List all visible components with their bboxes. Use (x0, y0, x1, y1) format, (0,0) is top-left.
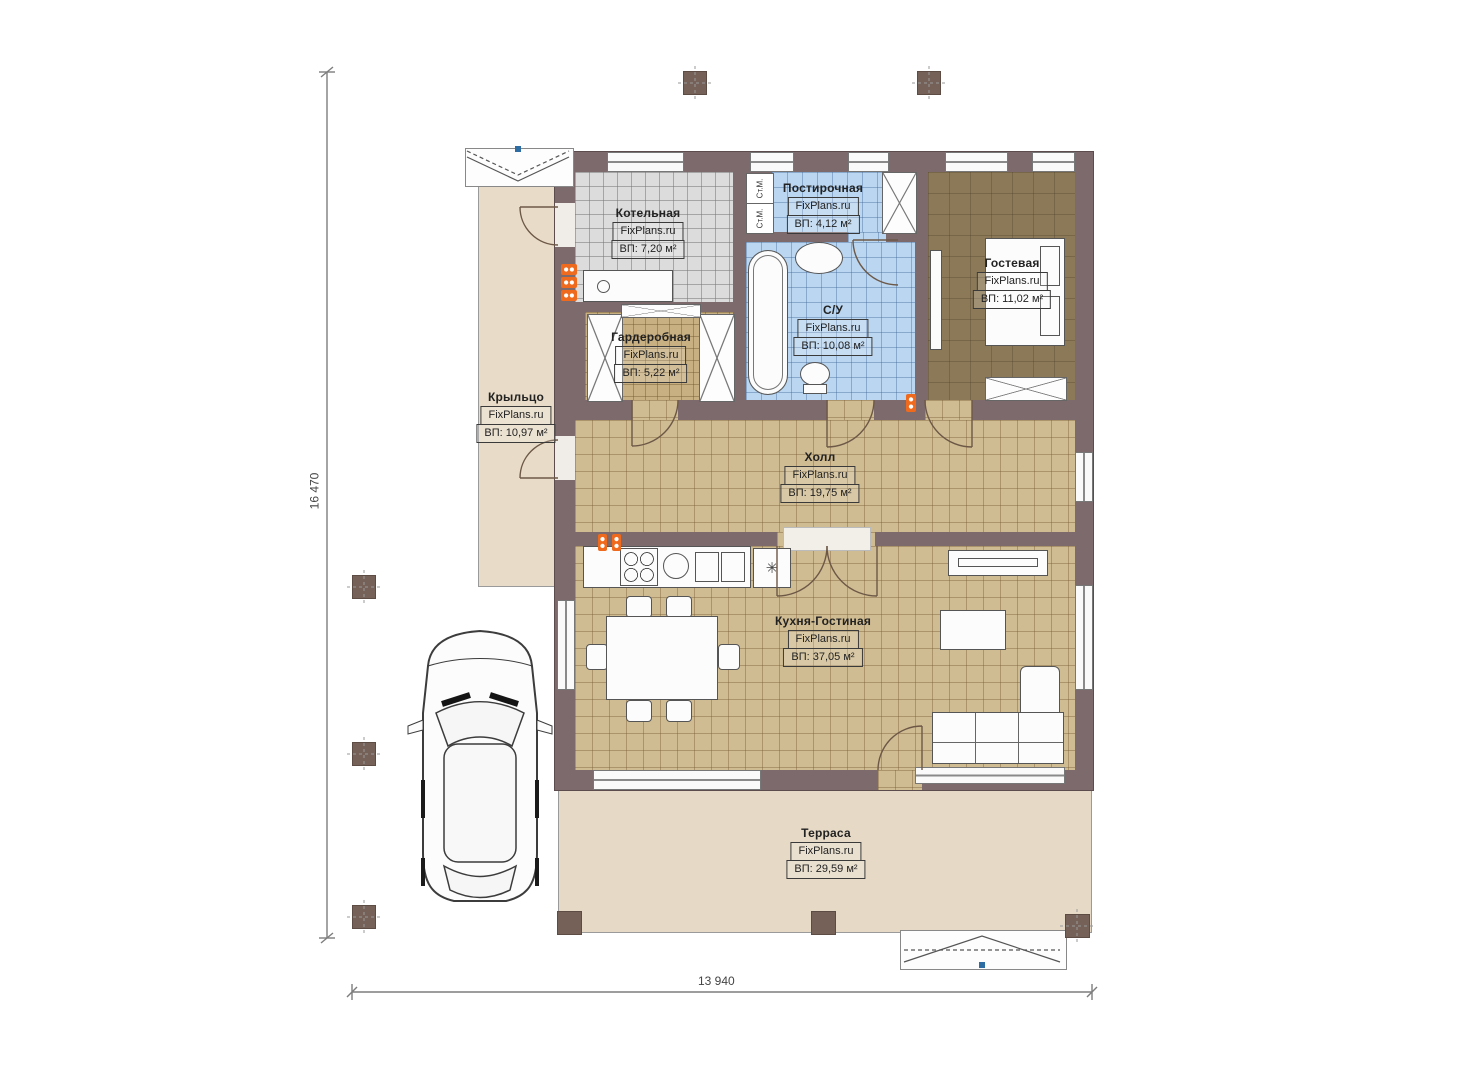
guest-dresser (930, 250, 942, 350)
dining-chair-1 (626, 596, 652, 618)
area-box: ВП: 10,97 м² (476, 424, 555, 443)
pillar-terrace-2 (812, 912, 835, 934)
toilet-bowl (800, 362, 830, 386)
window-top-1 (607, 152, 684, 172)
room-label-boiler: Котельная FixPlans.ru ВП: 7,20 м² (611, 206, 684, 259)
laundry-closet (882, 172, 917, 234)
radiator-boiler-3 (561, 290, 577, 301)
brand-box: FixPlans.ru (797, 319, 868, 338)
area-box: ВП: 10,08 м² (793, 337, 872, 356)
room-label-kitchen-living: Кухня-Гостиная FixPlans.ru ВП: 37,05 м² (775, 614, 871, 667)
pillar-left-2 (353, 743, 375, 765)
radiator-bathroom (906, 394, 916, 412)
fridge-glyph: ✳ (766, 559, 779, 577)
door-gap-bathroom-hall (827, 400, 874, 420)
porch-window-marker (465, 148, 574, 187)
window-top-2 (750, 152, 794, 172)
radiator-kitchen-2 (612, 534, 621, 551)
room-name: Холл (805, 450, 836, 464)
washer-label-2: Ст.М. (755, 209, 764, 229)
threshold-porch-door-2 (555, 436, 575, 480)
washing-machine-2: Ст.М. (746, 203, 774, 234)
dining-chair-6 (718, 644, 740, 670)
sliding-window-living (915, 767, 1065, 784)
pillar-left-1 (353, 576, 375, 598)
room-name: Кухня-Гостиная (775, 614, 871, 628)
dining-chair-2 (666, 596, 692, 618)
window-kitchen-left (557, 600, 575, 690)
brand-box: FixPlans.ru (615, 346, 686, 365)
radiator-boiler-2 (561, 277, 577, 288)
stove (620, 548, 658, 586)
sofa (932, 712, 1064, 764)
bathtub (748, 250, 788, 395)
area-box: ВП: 37,05 м² (783, 648, 862, 667)
room-name: Постирочная (783, 181, 863, 195)
room-label-bathroom: С/У FixPlans.ru ВП: 10,08 м² (793, 303, 872, 356)
door-gap-guest-hall (925, 400, 972, 420)
wardrobe-cabinet-top (621, 304, 701, 318)
room-name: Крыльцо (488, 390, 544, 404)
kitchen-sink-2 (721, 552, 745, 582)
dimension-line-left (319, 67, 335, 943)
kitchen-sink-1 (695, 552, 719, 582)
window-top-5 (1032, 152, 1075, 172)
radiator-kitchen-1 (598, 534, 607, 551)
threshold-hall-kitchen (783, 527, 871, 551)
area-box: ВП: 19,75 м² (780, 484, 859, 503)
brand-box: FixPlans.ru (787, 197, 858, 216)
dining-chair-4 (666, 700, 692, 722)
door-gap-wardrobe-hall (632, 400, 678, 420)
tv-panel (958, 558, 1038, 567)
floor-plan-canvas: Ст.М. Ст.М. ✳ (0, 0, 1474, 1080)
room-name: Терраса (801, 826, 851, 840)
washer-label-1: Ст.М. (755, 179, 764, 199)
window-kitchen-bottom (593, 770, 761, 790)
dining-table (606, 616, 718, 700)
window-hall-right (1075, 452, 1093, 502)
room-label-hall: Холл FixPlans.ru ВП: 19,75 м² (780, 450, 859, 503)
guest-closet (985, 377, 1067, 401)
brand-box: FixPlans.ru (480, 406, 551, 425)
kitchen-round-basin (663, 553, 689, 579)
toilet-tank (803, 384, 827, 394)
area-box: ВП: 5,22 м² (614, 364, 687, 383)
room-label-guest: Гостевая FixPlans.ru ВП: 11,02 м² (973, 256, 1051, 309)
radiator-boiler-1 (561, 264, 577, 275)
brand-box: FixPlans.ru (976, 272, 1047, 291)
room-label-terrace: Терраса FixPlans.ru ВП: 29,59 м² (786, 826, 865, 879)
fridge: ✳ (753, 548, 791, 588)
area-box: ВП: 4,12 м² (786, 215, 859, 234)
room-label-laundry: Постирочная FixPlans.ru ВП: 4,12 м² (783, 181, 863, 234)
brand-box: FixPlans.ru (612, 222, 683, 241)
pillar-top-1 (684, 72, 706, 94)
bathroom-sink (795, 242, 843, 274)
pillar-terrace-1 (558, 912, 581, 934)
brand-box: FixPlans.ru (784, 466, 855, 485)
dimension-label-left: 16 470 (307, 473, 321, 510)
area-box: ВП: 29,59 м² (786, 860, 865, 879)
terrace-window-marker (900, 930, 1067, 970)
wardrobe-cabinet-right (699, 314, 735, 402)
coffee-table (940, 610, 1006, 650)
dining-chair-3 (626, 700, 652, 722)
room-label-wardrobe: Гардеробная FixPlans.ru ВП: 5,22 м² (611, 330, 691, 383)
pillar-terrace-3 (1066, 915, 1089, 937)
area-box: ВП: 11,02 м² (973, 290, 1051, 309)
dimension-label-bottom: 13 940 (698, 974, 735, 988)
room-name: Гостевая (984, 256, 1039, 270)
boiler-sink (597, 280, 610, 293)
window-living-right (1075, 585, 1093, 690)
car-icon (408, 631, 552, 901)
pillar-top-2 (918, 72, 940, 94)
window-top-4 (945, 152, 1008, 172)
pillar-left-3 (353, 906, 375, 928)
room-name: Котельная (616, 206, 681, 220)
threshold-porch-door-1 (555, 203, 575, 247)
dining-chair-5 (586, 644, 608, 670)
room-name: Гардеробная (611, 330, 691, 344)
room-label-porch: Крыльцо FixPlans.ru ВП: 10,97 м² (476, 390, 555, 443)
window-top-3 (848, 152, 889, 172)
brand-box: FixPlans.ru (790, 842, 861, 861)
washing-machine-1: Ст.М. (746, 173, 774, 204)
brand-box: FixPlans.ru (787, 630, 858, 649)
room-name: С/У (823, 303, 843, 317)
porch-floor (478, 168, 558, 587)
area-box: ВП: 7,20 м² (611, 240, 684, 259)
